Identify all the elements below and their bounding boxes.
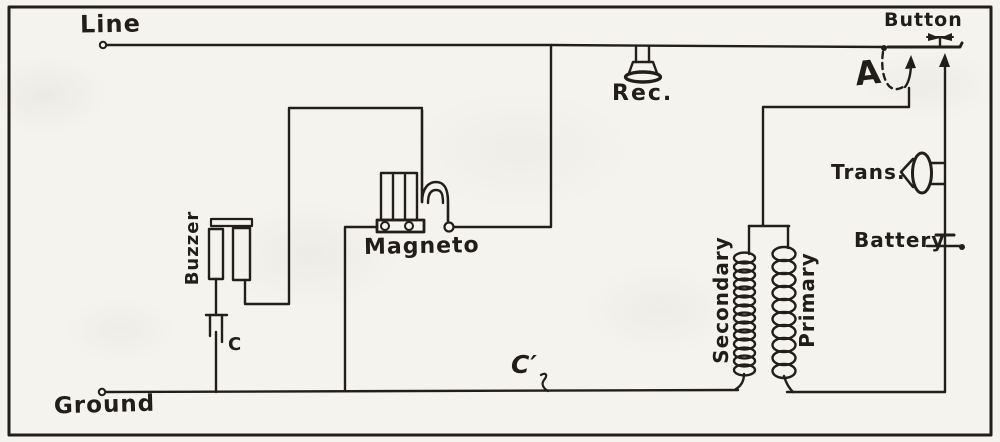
buzzer-coil-left [209, 229, 223, 279]
transmitter-label: Trans. [831, 162, 906, 182]
condenser-prime-label: C′ [511, 352, 538, 377]
frame-border [9, 7, 991, 435]
primary-coil-label: Primary [797, 220, 817, 380]
magneto-label: Magneto [364, 235, 480, 259]
ground-label: Ground [54, 393, 156, 419]
secondary-coil [734, 253, 755, 389]
buzzer-armature [211, 219, 252, 226]
transmitter-symbol [901, 153, 945, 193]
button-label: Button [884, 11, 963, 30]
receiver-symbol [626, 47, 661, 82]
condenser-label: C [228, 336, 242, 354]
ground-wire [99, 389, 738, 395]
magneto-crank-hook [422, 110, 448, 221]
schematic-page: Line Ground Rec. Button A Trans. Battery… [0, 0, 1000, 442]
line-label: Line [80, 11, 141, 36]
induction-coil-symbol [734, 226, 796, 392]
buzzer-label: Buzzer [184, 198, 202, 298]
cprime-tick-mark [541, 374, 548, 391]
button-symbol [888, 33, 962, 47]
battery-label: Battery [854, 230, 945, 250]
buzzer-magneto-wire [245, 108, 422, 304]
line-wire [100, 42, 887, 51]
hook-switch-symbol [882, 52, 916, 107]
primary-coil [773, 247, 796, 392]
receiver-label: Rec. [612, 83, 673, 105]
hook-switch-label: A [853, 55, 883, 91]
buzzer-coil-right [233, 228, 250, 280]
magneto-line-drop-wire [445, 45, 552, 232]
buzzer-symbol [209, 108, 422, 315]
condenser-symbol [206, 315, 227, 392]
circuit-svg [0, 0, 1000, 442]
secondary-coil-label: Secondary [711, 215, 731, 385]
